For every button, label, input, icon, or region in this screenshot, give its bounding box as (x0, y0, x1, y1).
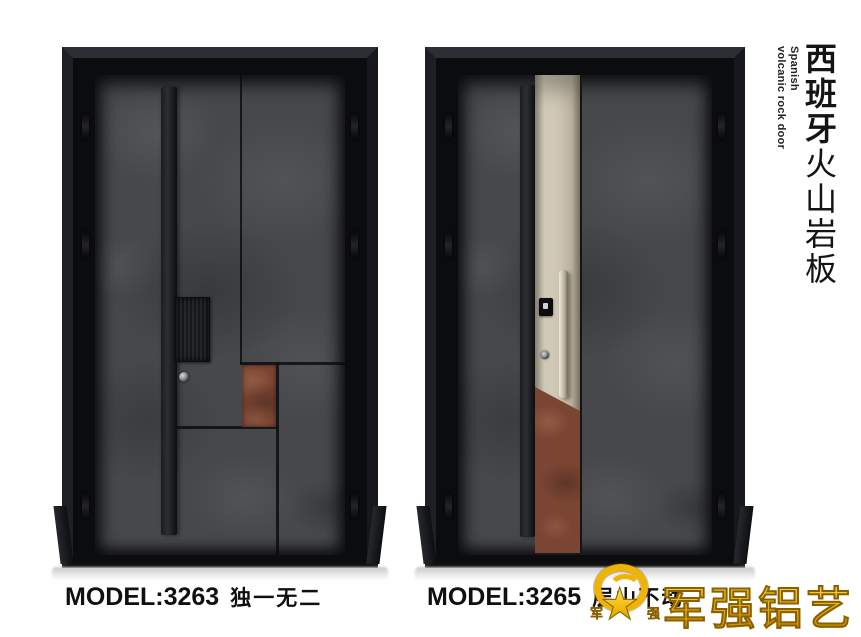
champagne-strip (535, 75, 582, 553)
door-hinge (445, 493, 452, 519)
door-image-3265 (425, 47, 745, 568)
door-hinge (445, 113, 452, 139)
brand-wordmark: 军强铝艺 (662, 572, 854, 637)
tagline-3263: 独一无二 (230, 587, 322, 610)
keyhole (541, 351, 549, 359)
door-jamb (436, 58, 734, 561)
catalog-page: Spanish volcanic rock door 西班牙火山岩板 MODEL… (0, 0, 861, 632)
lock-plate (175, 297, 210, 362)
door-hinge (82, 113, 89, 139)
keyhole (179, 372, 189, 382)
panel-seam-vertical (276, 362, 279, 555)
door-hinge (351, 493, 358, 519)
door-hinge (718, 232, 725, 258)
lock-indicator (543, 303, 548, 309)
door-hinge (718, 113, 725, 139)
door-hinge (445, 232, 452, 258)
floor-reflection (52, 567, 388, 581)
door-hinge (82, 232, 89, 258)
model-number-3265: MODEL:3265 (427, 583, 581, 611)
pull-handle (559, 270, 568, 398)
side-title-chinese-bold: 西班牙 (801, 42, 837, 147)
rust-inlay-panel (242, 365, 276, 427)
handle-bar (520, 85, 535, 537)
side-title-english: Spanish volcanic rock door (774, 46, 800, 158)
badge-char-right: 强 (647, 603, 660, 622)
door-hinge (351, 113, 358, 139)
door-image-3263 (62, 47, 378, 568)
door-outer-frame (62, 47, 378, 568)
volcanic-rock-slab (458, 75, 712, 555)
door-hinge (82, 493, 89, 519)
badge-char-left: 军 (590, 603, 603, 622)
caption-model-3263: MODEL:3263独一无二 (65, 582, 322, 612)
volcanic-rock-slab (95, 75, 345, 555)
side-title-chinese-light: 火山岩板 (801, 147, 837, 287)
side-title-chinese: 西班牙火山岩板 (799, 42, 839, 287)
door-jamb (73, 58, 367, 561)
smart-lock (539, 298, 553, 316)
panel-seam-vertical (240, 75, 242, 364)
door-outer-frame (425, 47, 745, 568)
door-hinge (351, 232, 358, 258)
model-number-3263: MODEL:3263 (65, 583, 219, 611)
star-icon: ★ (600, 583, 639, 627)
door-hinge (718, 493, 725, 519)
side-title-english-line2: volcanic rock door (774, 46, 787, 158)
rust-lower-strip (535, 378, 580, 553)
brand-badge: ★ 军 强 (592, 561, 658, 631)
